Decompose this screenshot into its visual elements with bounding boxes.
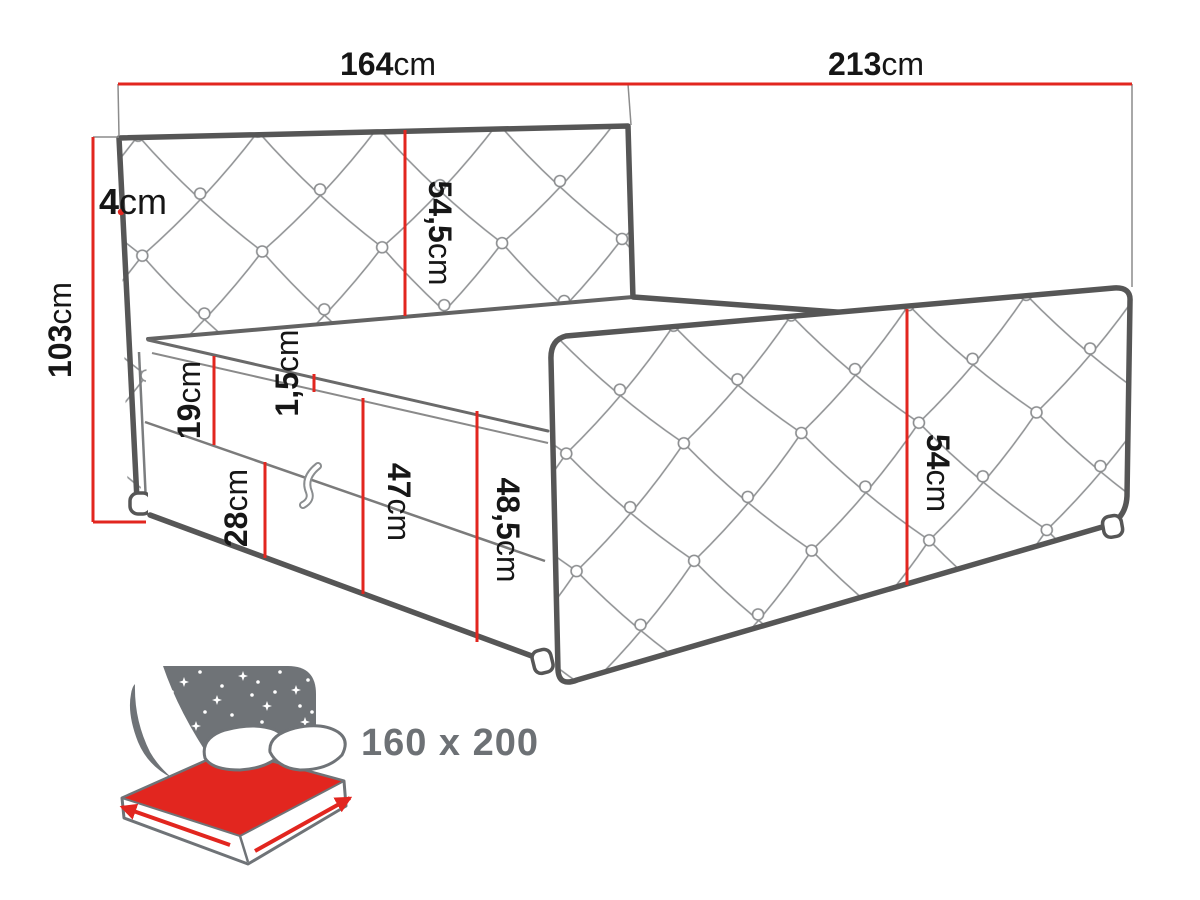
front-leg — [531, 648, 555, 675]
size-badge: 160 x 200 — [122, 666, 539, 864]
dim-label-54: 54cm — [920, 434, 956, 512]
dim-label-19: 19cm — [171, 361, 207, 439]
side-panel — [540, 270, 1150, 700]
size-label: 160 x 200 — [361, 722, 539, 764]
double-bed-size-icon — [122, 666, 350, 864]
side-panel-quilting-pattern — [540, 270, 1150, 700]
dim-label-28: 28cm — [218, 469, 254, 547]
dim-label-103: 103cm — [42, 282, 78, 378]
dim-label-4: 4cm — [99, 181, 167, 222]
dim-label-213: 213cm — [828, 46, 924, 82]
dim-label-54-5: 54,5cm — [422, 181, 458, 286]
dim-label-48-5: 48,5cm — [490, 478, 526, 583]
ext-tick-164-213 — [628, 84, 631, 125]
bed-dimension-diagram: 164cm 213cm 4cm 103cm 54,5cm 19cm 1,5cm … — [0, 0, 1200, 900]
bed-diagram-svg: 164cm 213cm 4cm 103cm 54,5cm 19cm 1,5cm … — [0, 0, 1200, 900]
ext-tick-164-left — [118, 84, 119, 136]
dim-label-164: 164cm — [340, 46, 436, 82]
pillow-right-icon — [270, 726, 345, 770]
headboard-leg — [130, 493, 151, 514]
dim-label-1-5: 1,5cm — [269, 329, 305, 416]
rear-leg — [1101, 514, 1123, 538]
dim-label-47: 47cm — [381, 463, 417, 541]
moon-sliver-icon — [130, 684, 172, 778]
